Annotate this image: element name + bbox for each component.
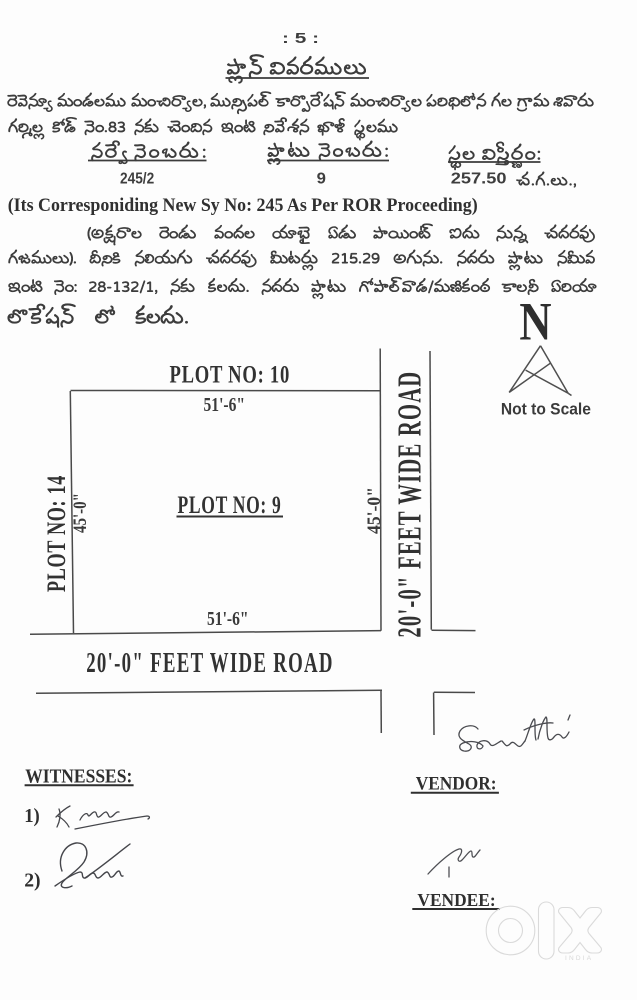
svg-text:20'-0" FEET WIDE ROAD: 20'-0" FEET WIDE ROAD bbox=[86, 647, 334, 679]
svg-text:WITNESSES:: WITNESSES: bbox=[25, 765, 132, 787]
svg-text:PLOT NO: 10: PLOT NO: 10 bbox=[170, 362, 291, 389]
svg-text:PLOT NO: 9: PLOT NO: 9 bbox=[178, 490, 282, 519]
svg-text:VENDOR:: VENDOR: bbox=[416, 774, 497, 795]
svg-text:PLOT NO: 14: PLOT NO: 14 bbox=[42, 475, 71, 592]
svg-text:45'-0": 45'-0" bbox=[71, 493, 91, 533]
svg-text:2): 2) bbox=[24, 870, 40, 892]
svg-text:(Its Corresponiding New Sy No:: (Its Corresponiding New Sy No: 245 As Pe… bbox=[8, 195, 478, 216]
svg-text:Not to Scale: Not to Scale bbox=[501, 400, 591, 419]
svg-text:20'-0" FEET WIDE ROAD: 20'-0" FEET WIDE ROAD bbox=[392, 371, 429, 638]
svg-text:51'-6": 51'-6" bbox=[204, 394, 246, 416]
svg-text:245/2: 245/2 bbox=[120, 170, 154, 187]
svg-text:1): 1) bbox=[24, 805, 40, 827]
svg-text:51'-6": 51'-6" bbox=[207, 608, 249, 630]
svg-text:257.50: 257.50 bbox=[451, 170, 507, 187]
svg-text:N: N bbox=[519, 291, 551, 351]
svg-text:: 5 :: : 5 : bbox=[282, 31, 319, 47]
svg-text:INDIA: INDIA bbox=[565, 955, 593, 962]
svg-text:45'-0": 45'-0" bbox=[365, 487, 385, 534]
svg-text:VENDEE:: VENDEE: bbox=[417, 890, 495, 910]
svg-text:9: 9 bbox=[317, 170, 326, 187]
